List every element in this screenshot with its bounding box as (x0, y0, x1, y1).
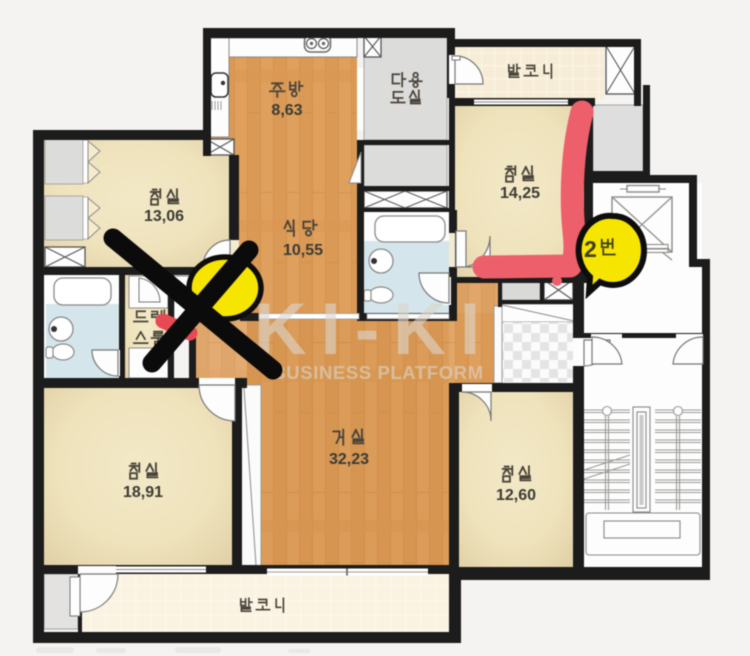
svg-text:12,60: 12,60 (496, 487, 536, 504)
svg-text:KI-KI: KI-KI (254, 289, 494, 370)
svg-text:10,55: 10,55 (283, 242, 323, 259)
svg-text:14,25: 14,25 (500, 185, 540, 202)
svg-text:32,23: 32,23 (329, 451, 369, 468)
svg-text:13,06: 13,06 (144, 208, 184, 225)
svg-text:2: 2 (584, 236, 597, 262)
svg-text:18,91: 18,91 (123, 484, 163, 501)
svg-text:8,63: 8,63 (271, 102, 302, 119)
svg-text:BUSINESS PLATFORM: BUSINESS PLATFORM (272, 362, 483, 383)
